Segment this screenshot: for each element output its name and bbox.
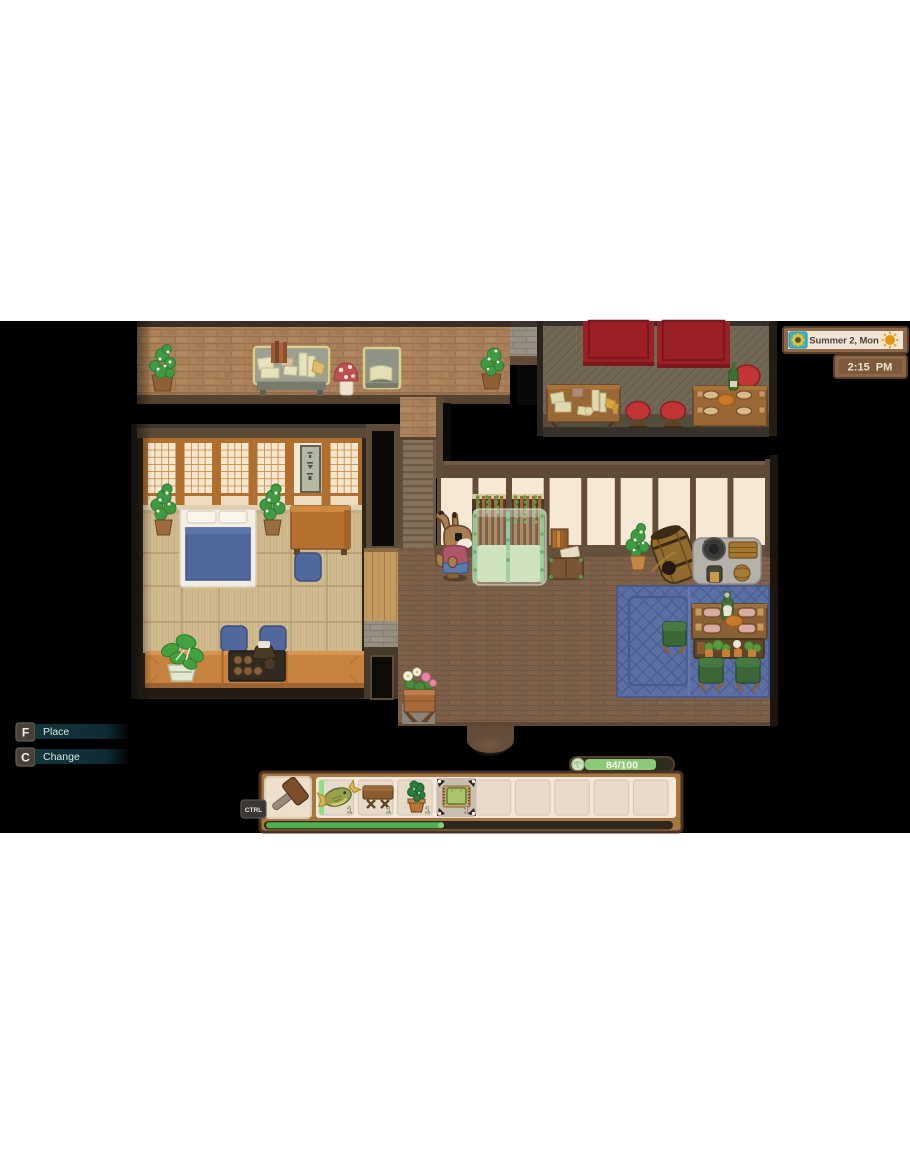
svg-text:C: C <box>21 751 30 765</box>
svg-text:1: 1 <box>386 805 391 815</box>
svg-text:1: 1 <box>347 805 352 815</box>
svg-text:Place: Place <box>43 726 69 738</box>
svg-text:Summer 2, Mon: Summer 2, Mon <box>809 336 879 347</box>
svg-text:84/100: 84/100 <box>606 760 638 772</box>
svg-text:2:15 PM: 2:15 PM <box>848 362 893 374</box>
svg-text:F: F <box>22 726 29 740</box>
svg-text:1: 1 <box>425 805 430 815</box>
svg-text:CTRL: CTRL <box>245 807 262 814</box>
svg-text:Change: Change <box>43 751 80 763</box>
svg-text:1: 1 <box>464 805 469 815</box>
